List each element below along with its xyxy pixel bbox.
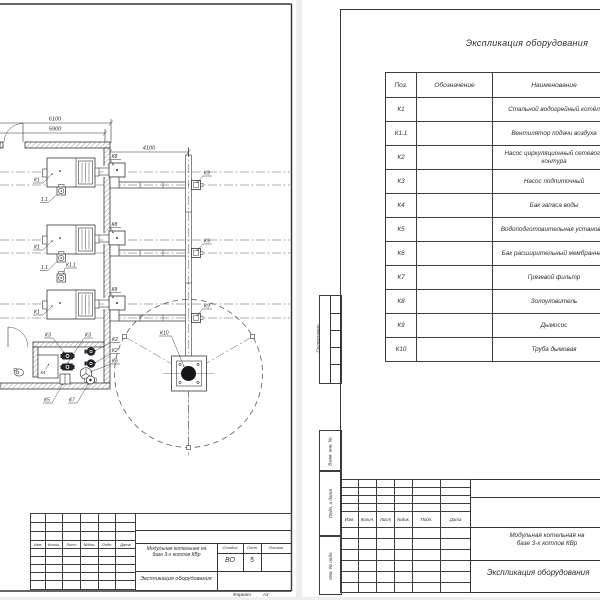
dim-overall: 6100 bbox=[49, 117, 62, 123]
fan-1 bbox=[57, 185, 66, 196]
inner-door bbox=[8, 327, 28, 347]
stamp-box-replace-inv: Взам. инв. № bbox=[319, 430, 342, 472]
rev-header: №док. bbox=[395, 512, 413, 528]
stamp-box-sign-date: Подп. и дата bbox=[319, 470, 342, 537]
format-note: ФорматА3 bbox=[233, 592, 268, 597]
revision-table-right: Изм. Колич. Лист №док. Подп. Дата bbox=[340, 479, 471, 593]
sheet-label: Лист bbox=[243, 545, 261, 550]
label-smoke-exhauster-2: К9 bbox=[204, 239, 210, 245]
rev-header: Дата bbox=[116, 541, 136, 549]
boiler-2 bbox=[43, 225, 100, 254]
spec-row: К1Стальной водогрейный котёл bbox=[386, 98, 600, 122]
sheet-frame bbox=[0, 4, 292, 591]
feed-pump-k3-2 bbox=[61, 364, 75, 371]
specification-title: Экспликация оборудования bbox=[452, 38, 600, 48]
label-circ-pump-1: К2 bbox=[112, 337, 118, 343]
stamp-box-inv-orig: Инв. № подл. bbox=[319, 535, 342, 595]
label-smoke-exhauster-1: К9 bbox=[204, 171, 210, 177]
label-water-treatment: К5 bbox=[44, 398, 50, 404]
label-feed-pump-2: К3 bbox=[85, 333, 91, 339]
label-ash-catcher-3: К8 bbox=[112, 287, 118, 293]
dimensions: 6100 5900 4100 bbox=[0, 117, 191, 158]
spec-row: К5Водоподготовительная установка bbox=[386, 218, 600, 242]
label-chimney: К10 bbox=[160, 331, 169, 337]
chimney bbox=[163, 356, 214, 391]
label-ash-catcher-1: К8 bbox=[112, 154, 118, 160]
boiler-1 bbox=[43, 158, 100, 187]
boilers bbox=[43, 158, 100, 319]
label-boiler-2: К1 bbox=[34, 245, 40, 251]
water-treatment-k5 bbox=[60, 374, 70, 384]
boiler-3 bbox=[43, 290, 100, 319]
rev-header: Изм. bbox=[31, 541, 46, 549]
vestibule-fixture bbox=[14, 369, 24, 377]
rev-header: Изм. bbox=[341, 512, 359, 528]
spec-row: К8Золоуловитель bbox=[386, 290, 600, 314]
label-smoke-exhauster-3: К9 bbox=[204, 304, 210, 310]
sheets-label: Листов bbox=[261, 545, 291, 550]
label-fan-3: К1.1 bbox=[66, 263, 76, 269]
spec-col-pos: Поз. bbox=[386, 73, 417, 98]
stamp-box-agreed: Согласовано bbox=[319, 295, 342, 384]
spec-row: К3Насос подпиточный bbox=[386, 170, 600, 194]
spec-row: К4Бак запаса воды bbox=[386, 194, 600, 218]
label-expansion-tank: К6 bbox=[112, 359, 118, 365]
spec-col-designation: Обозначение bbox=[417, 73, 493, 98]
circulation-pump-k2-1 bbox=[85, 347, 96, 356]
duct-row-1 bbox=[109, 163, 203, 190]
dim-flue-offset: 4100 bbox=[143, 146, 156, 152]
label-dirt-filter: К7 bbox=[69, 398, 75, 404]
label-fan-1: 1.1 bbox=[41, 197, 48, 203]
doc-title-right: Экспликация оборудования bbox=[487, 568, 589, 577]
label-tank: К4 bbox=[41, 370, 47, 375]
cad-viewer-workspace: .ax{stroke:#5a5b5f;stroke-width:0.5;stro… bbox=[0, 0, 600, 600]
rev-header: Подп. bbox=[413, 512, 441, 528]
sheet-specification: Согласовано Взам. инв. № Подп. и дата Ин… bbox=[302, 0, 600, 597]
doc-title-left: Экспликация оборудования bbox=[135, 576, 217, 582]
side-label-inv-orig: Инв. № подл. bbox=[328, 551, 333, 580]
label-feed-pump-1: К3 bbox=[45, 333, 51, 339]
revision-table-left: Изм. Колич. Лист №док. Подп. Дата bbox=[30, 513, 136, 590]
spec-col-name: Наименование bbox=[493, 73, 600, 98]
duct-row-2 bbox=[109, 231, 203, 258]
label-ash-catcher-2: К8 bbox=[112, 222, 118, 228]
spec-row: К7Грязевой фильтр bbox=[386, 266, 600, 290]
label-boiler-1: К1 bbox=[34, 178, 40, 184]
frame-top bbox=[340, 9, 600, 10]
side-label-agreed: Согласовано bbox=[316, 324, 321, 352]
side-label-replace-inv: Взам. инв. № bbox=[328, 437, 333, 465]
boiler-plant-plan-drawing: .ax{stroke:#5a5b5f;stroke-width:0.5;stro… bbox=[0, 0, 296, 597]
spec-row: К6Бак расширительный мембранный bbox=[386, 242, 600, 266]
project-name-right: Модульная котельная набазе 3-х котлов КВ… bbox=[472, 532, 600, 548]
rev-header: Лист bbox=[63, 541, 81, 549]
rev-header: Лист bbox=[377, 512, 395, 528]
dim-inner: 5900 bbox=[49, 127, 62, 133]
equipment-specification-table: Поз. Обозначение Наименование К1Стальной… bbox=[385, 72, 600, 362]
duct-row-3 bbox=[109, 296, 203, 323]
label-fan-2: 1.1 bbox=[41, 265, 48, 271]
rev-header: Колич. bbox=[359, 512, 377, 528]
rev-header: Дата bbox=[441, 512, 471, 528]
stage-label: Стадия bbox=[217, 545, 243, 550]
stage-value: ВО bbox=[217, 557, 243, 564]
project-name-left: Модульная котельная набазе 3-х котлов КВ… bbox=[136, 546, 217, 558]
circulation-pump-k2-2 bbox=[85, 359, 96, 368]
label-boiler-3: К1 bbox=[34, 310, 40, 316]
sheet-plan: .ax{stroke:#5a5b5f;stroke-width:0.5;stro… bbox=[0, 0, 296, 597]
label-circ-pump-2: К2 bbox=[112, 348, 118, 354]
fan-3 bbox=[57, 272, 66, 283]
spec-row: К9Дымосос bbox=[386, 314, 600, 338]
side-label-sign-date: Подп. и дата bbox=[328, 489, 333, 518]
spec-row: К2Насос циркуляционный сетевого контура bbox=[386, 146, 600, 170]
rev-header: Колич. bbox=[46, 541, 63, 549]
spec-row: К10Труба дымовая bbox=[386, 338, 600, 362]
pump-room-equipment bbox=[14, 347, 96, 384]
rev-header: №док. bbox=[81, 541, 99, 549]
fan-2 bbox=[57, 252, 66, 263]
spec-row: К1.1Вентилятор подачи воздуха bbox=[386, 122, 600, 146]
sheet-number: 5 bbox=[243, 557, 261, 564]
rev-header: Подп. bbox=[99, 541, 116, 549]
